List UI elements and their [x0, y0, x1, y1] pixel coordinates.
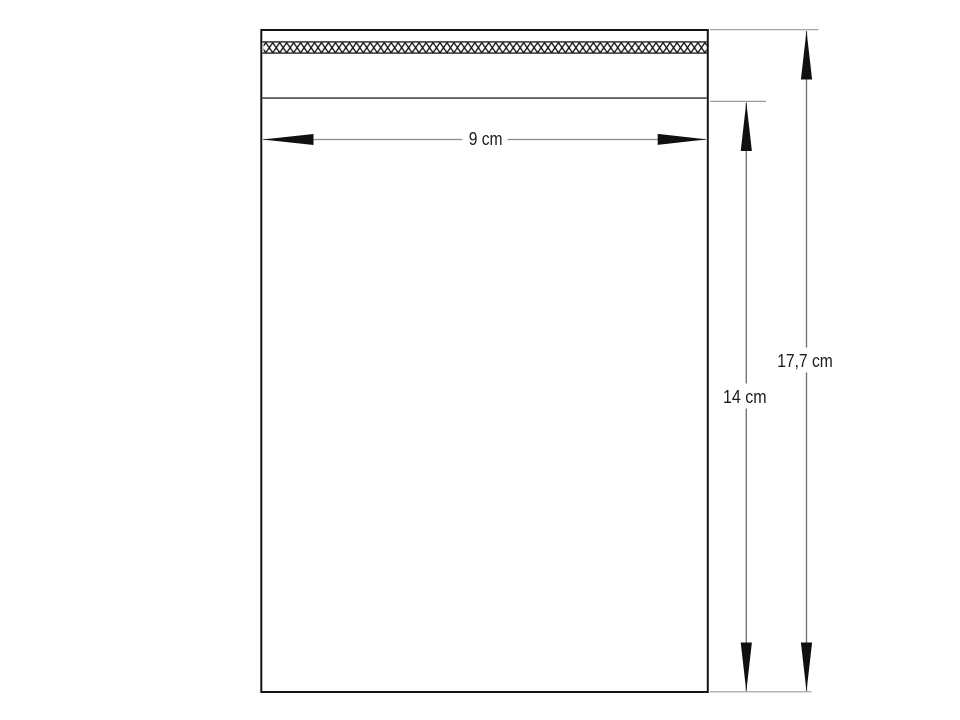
- svg-text:17,7 cm: 17,7 cm: [777, 351, 833, 371]
- svg-text:14 cm: 14 cm: [723, 387, 767, 407]
- svg-text:9 cm: 9 cm: [469, 129, 503, 149]
